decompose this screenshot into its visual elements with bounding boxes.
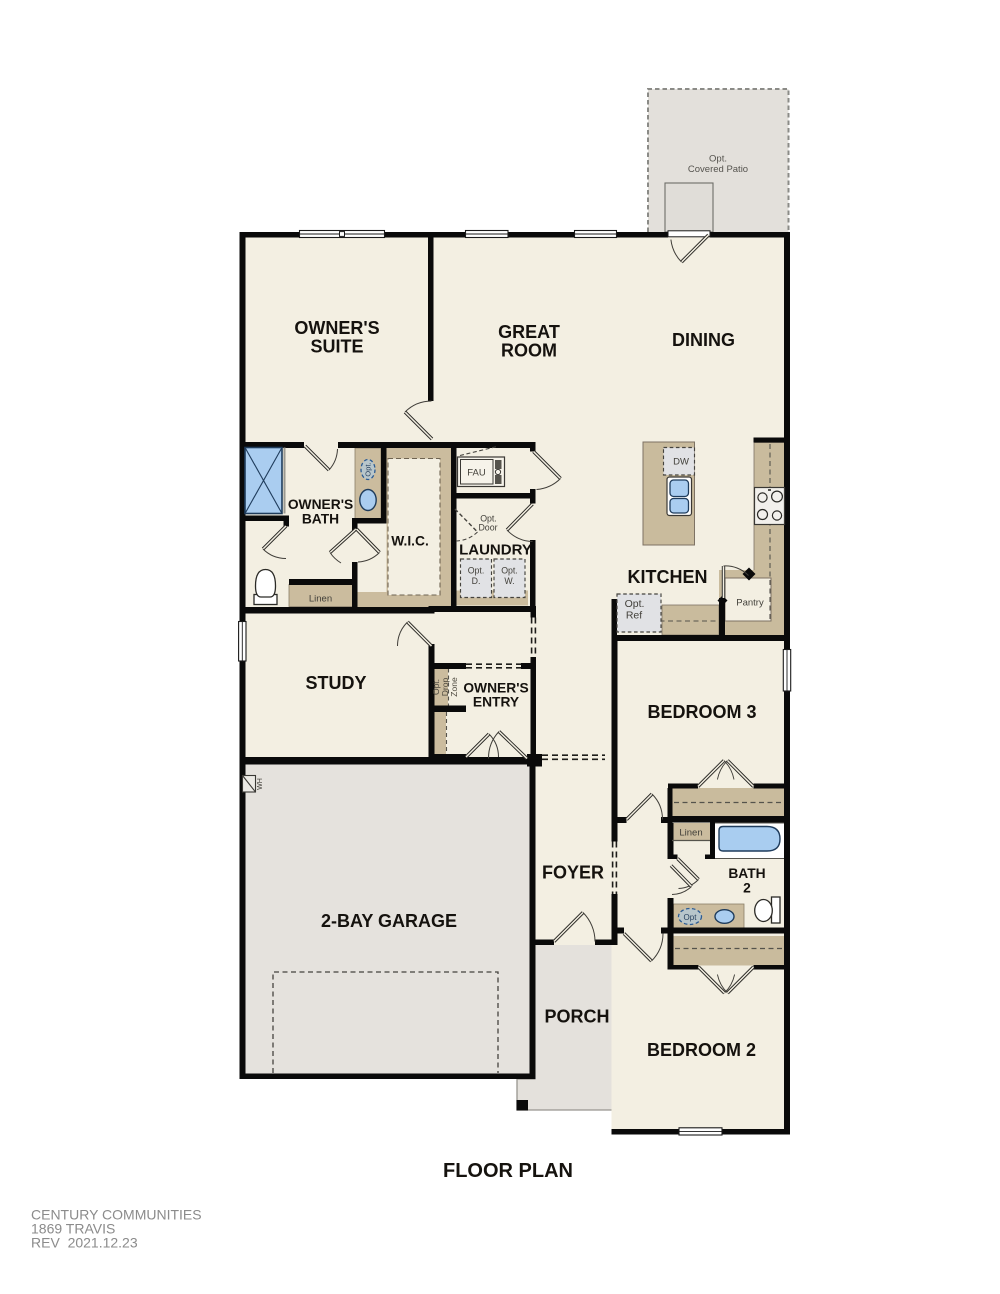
svg-text:Opt.: Opt.	[625, 598, 645, 610]
svg-text:BATH: BATH	[728, 866, 765, 881]
svg-text:OWNER'S: OWNER'S	[463, 681, 528, 696]
svg-text:FOYER: FOYER	[542, 863, 604, 883]
svg-text:FAU: FAU	[467, 468, 486, 479]
svg-text:BEDROOM 3: BEDROOM 3	[647, 702, 756, 722]
svg-text:D.: D.	[472, 576, 481, 586]
svg-text:OWNER'S: OWNER'S	[294, 318, 379, 338]
svg-text:BATH: BATH	[302, 512, 339, 527]
svg-text:PORCH: PORCH	[544, 1007, 609, 1027]
svg-text:SUITE: SUITE	[310, 337, 363, 357]
svg-text:Zone: Zone	[449, 677, 459, 697]
svg-text:LAUNDRY: LAUNDRY	[459, 542, 532, 559]
svg-text:W.I.C.: W.I.C.	[391, 534, 429, 549]
svg-text:GREAT: GREAT	[498, 322, 560, 342]
svg-text:BEDROOM 2: BEDROOM 2	[647, 1040, 756, 1060]
svg-text:W.: W.	[504, 576, 514, 586]
svg-text:2-BAY GARAGE: 2-BAY GARAGE	[321, 911, 457, 931]
svg-text:DW: DW	[673, 457, 689, 468]
svg-text:Door: Door	[478, 523, 497, 533]
svg-text:REV 2021.12.23: REV 2021.12.23	[31, 1235, 138, 1251]
svg-text:FLOOR PLAN: FLOOR PLAN	[443, 1160, 573, 1182]
svg-text:Ref: Ref	[626, 610, 642, 622]
svg-text:OWNER'S: OWNER'S	[288, 497, 353, 512]
svg-text:Opt: Opt	[684, 913, 698, 922]
svg-text:Covered Patio: Covered Patio	[688, 164, 748, 175]
svg-text:WH: WH	[257, 778, 264, 790]
svg-text:ROOM: ROOM	[501, 341, 557, 361]
svg-text:STUDY: STUDY	[305, 673, 366, 693]
svg-text:Linen: Linen	[679, 828, 702, 839]
svg-text:KITCHEN: KITCHEN	[628, 567, 708, 587]
svg-text:ENTRY: ENTRY	[473, 695, 519, 710]
svg-text:Opt.: Opt.	[709, 154, 727, 165]
svg-text:Opt.: Opt.	[468, 566, 485, 576]
svg-text:DINING: DINING	[672, 330, 735, 350]
svg-text:Opt.: Opt.	[364, 462, 373, 476]
svg-text:Pantry: Pantry	[736, 598, 764, 609]
svg-text:2: 2	[743, 881, 751, 896]
svg-text:Linen: Linen	[309, 594, 332, 605]
svg-text:Opt.: Opt.	[501, 566, 518, 576]
